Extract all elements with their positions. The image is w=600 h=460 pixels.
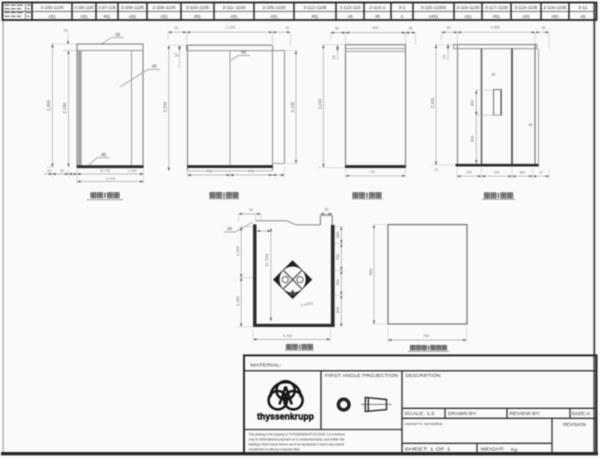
svg-text:225: 225 <box>494 170 500 174</box>
svg-text:50: 50 <box>335 26 339 30</box>
svg-text:#51: #51 <box>312 14 320 19</box>
svg-text:SCALE: 1:2: SCALE: 1:2 <box>405 411 436 416</box>
svg-text:3-113=110: 3-113=110 <box>340 5 361 10</box>
svg-text:3-115=11005: 3-115=11005 <box>421 5 447 10</box>
svg-text:15: 15 <box>174 26 178 30</box>
svg-text:3-112=1105: 3-112=1105 <box>304 5 328 10</box>
svg-text:A51: A51 <box>270 14 278 19</box>
svg-text:2,200: 2,200 <box>46 99 51 110</box>
svg-text:425: 425 <box>466 170 472 174</box>
svg-text:2-109=1100: 2-109=1100 <box>153 5 177 10</box>
svg-text:#51: #51 <box>104 14 112 19</box>
svg-text:3-1: 3-1 <box>399 5 407 10</box>
svg-text:950: 950 <box>470 135 475 142</box>
svg-text:50: 50 <box>249 208 253 212</box>
svg-text:owner's remarks:: owner's remarks: <box>405 422 444 426</box>
svg-text:58: 58 <box>60 169 64 173</box>
svg-text:DESCRIPTION:: DESCRIPTION: <box>406 373 442 378</box>
svg-text:2,150: 2,150 <box>62 102 67 113</box>
svg-text:2,150: 2,150 <box>290 101 295 112</box>
svg-text:3-105=1100: 3-105=1100 <box>263 5 287 10</box>
svg-text:A51: A51 <box>160 14 168 19</box>
svg-text:A#51: A#51 <box>429 14 439 19</box>
svg-text:2,205: 2,205 <box>430 97 435 108</box>
svg-text:This drawing is the property o: This drawing is the property of THYSSENK… <box>249 432 345 436</box>
svg-text:715: 715 <box>248 170 254 174</box>
svg-text:4B: 4B <box>241 49 246 54</box>
svg-text:37,760: 37,760 <box>100 169 111 173</box>
svg-text:900: 900 <box>372 26 378 30</box>
svg-text:50: 50 <box>64 29 68 33</box>
svg-text:SIZE:A: SIZE:A <box>572 411 591 416</box>
svg-text:3-106=1105: 3-106=1105 <box>74 5 94 10</box>
svg-text:A51: A51 <box>230 14 238 19</box>
svg-text:only for informational purpose: only for informational purposes on a con… <box>249 437 345 441</box>
svg-text:3-105=1100: 3-105=1100 <box>41 5 65 10</box>
svg-text:A51: A51 <box>129 14 137 19</box>
svg-text:1,150: 1,150 <box>235 245 240 256</box>
svg-text:WEIGHT:: WEIGHT: <box>481 446 505 451</box>
svg-text:#51: #51 <box>493 14 501 19</box>
svg-text:MATERIAL:: MATERIAL: <box>251 362 282 368</box>
svg-text:450: 450 <box>335 231 340 238</box>
svg-text:3-118=1105: 3-118=1105 <box>515 5 539 10</box>
svg-text:3-111=1100: 3-111=1100 <box>223 5 247 10</box>
svg-text:#5: #5 <box>375 14 380 19</box>
svg-text:A51: A51 <box>464 14 472 19</box>
svg-text:750: 750 <box>335 253 340 260</box>
svg-text:3-108=1105: 3-108=1105 <box>121 5 145 10</box>
svg-text:(2,700): (2,700) <box>264 253 269 266</box>
svg-text:1B: 1B <box>151 63 156 68</box>
svg-text:4B: 4B <box>101 152 106 157</box>
svg-text:50: 50 <box>539 170 543 174</box>
svg-text:15: 15 <box>332 55 336 59</box>
svg-text:A51: A51 <box>48 14 56 19</box>
svg-text:A5: A5 <box>580 14 586 19</box>
svg-text:1,055: 1,055 <box>490 26 499 30</box>
svg-text:4,700: 4,700 <box>106 177 116 181</box>
svg-text:DRAWN BY:: DRAWN BY: <box>448 411 477 416</box>
svg-text:3-11: 3-11 <box>578 5 588 10</box>
svg-text:900: 900 <box>335 306 340 313</box>
svg-text:50: 50 <box>447 26 451 30</box>
svg-text:1B: 1B <box>115 32 120 37</box>
svg-text:3-110=1105: 3-110=1105 <box>186 5 210 10</box>
svg-text:715: 715 <box>206 170 212 174</box>
svg-text:550: 550 <box>368 268 373 276</box>
svg-text:REVIEW BY:: REVIEW BY: <box>510 411 541 416</box>
svg-text:3-117=1100: 3-117=1100 <box>485 5 509 10</box>
svg-text:3-116=1105: 3-116=1105 <box>457 5 481 10</box>
svg-text:REVISION: REVISION <box>563 422 586 427</box>
svg-text:A51: A51 <box>551 14 559 19</box>
svg-text:1,150: 1,150 <box>128 169 137 173</box>
svg-text:1,150: 1,150 <box>235 295 240 306</box>
svg-text:700: 700 <box>335 278 340 285</box>
svg-text:460: 460 <box>519 170 525 174</box>
svg-text:15: 15 <box>443 55 447 59</box>
svg-text:A: A <box>401 14 404 19</box>
svg-text:SHEET: 1 OF 1: SHEET: 1 OF 1 <box>405 447 452 452</box>
svg-text:2,205: 2,205 <box>162 101 167 112</box>
svg-text:1,125: 1,125 <box>226 26 235 30</box>
svg-text:4,700: 4,700 <box>283 334 292 338</box>
svg-text:1B: 1B <box>227 226 232 231</box>
svg-text:drawing or items shown thereon: drawing or items shown thereon are to be… <box>249 443 346 447</box>
svg-text:thyssenkrupp: thyssenkrupp <box>257 412 315 422</box>
svg-text:50: 50 <box>409 26 413 30</box>
svg-text:750: 750 <box>423 334 429 338</box>
svg-text:2-114=1: 2-114=1 <box>369 5 386 10</box>
svg-text:2,200: 2,200 <box>318 98 323 109</box>
svg-text:50: 50 <box>325 208 329 212</box>
svg-text:A5: A5 <box>347 14 353 19</box>
svg-text:50: 50 <box>47 169 51 173</box>
svg-text:A51: A51 <box>522 14 530 19</box>
svg-text:700: 700 <box>369 170 375 174</box>
svg-text:A51: A51 <box>80 14 88 19</box>
svg-text:50: 50 <box>286 26 290 30</box>
svg-text:2-119=1105: 2-119=1105 <box>544 5 568 10</box>
svg-text:50: 50 <box>542 26 546 30</box>
svg-text:#51: #51 <box>194 14 202 19</box>
svg-text:Kg.: Kg. <box>511 447 518 453</box>
svg-text:3-107=1100: 3-107=1100 <box>98 5 116 10</box>
svg-text:15: 15 <box>434 168 438 172</box>
svg-text:FIRST ANGLE PROJECTION: FIRST ANGLE PROJECTION <box>325 373 398 378</box>
svg-text:not authorized in writing by a: not authorized in writing by a corporate… <box>249 448 301 452</box>
svg-text:350: 350 <box>470 99 475 106</box>
